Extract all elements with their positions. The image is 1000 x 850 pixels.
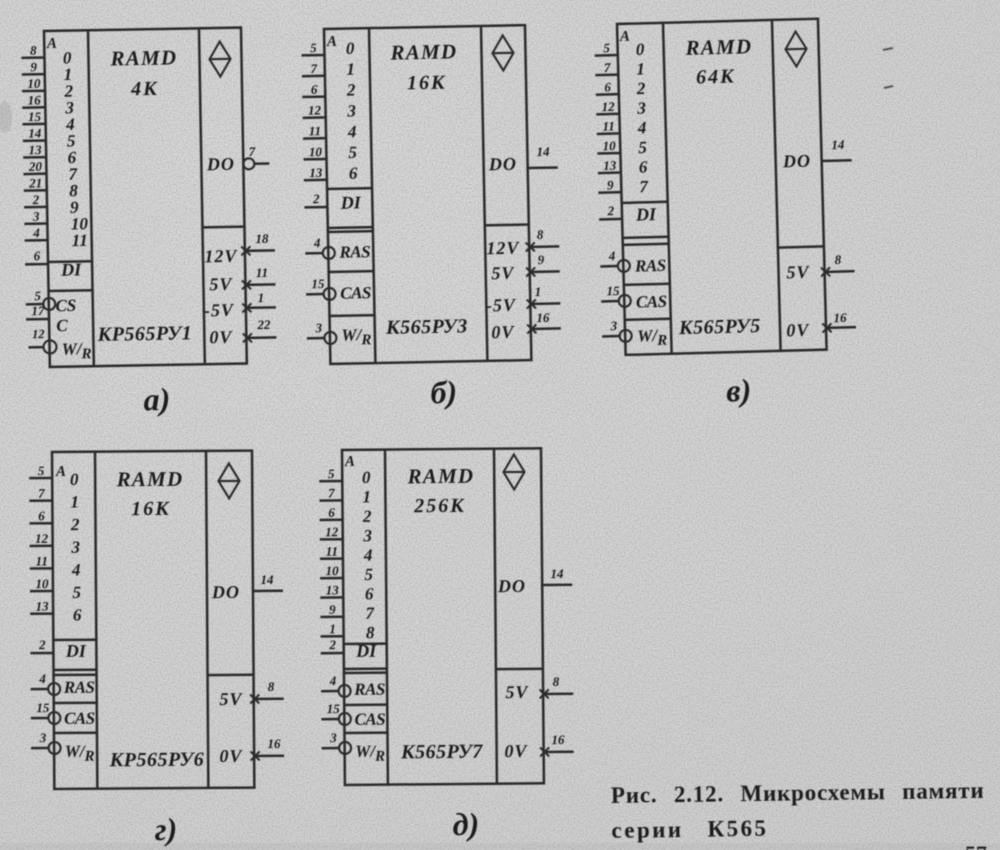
svg-text:7: 7 bbox=[38, 486, 45, 501]
svg-text:8: 8 bbox=[366, 623, 375, 642]
svg-text:2: 2 bbox=[636, 79, 646, 98]
svg-text:0V: 0V bbox=[504, 741, 528, 761]
svg-text:A: A bbox=[619, 29, 630, 45]
svg-text:3: 3 bbox=[329, 730, 337, 745]
svg-text:1: 1 bbox=[636, 59, 645, 78]
svg-text:DO: DO bbox=[488, 154, 517, 175]
svg-text:2: 2 bbox=[362, 507, 372, 526]
svg-text:7: 7 bbox=[310, 61, 317, 76]
svg-text:DO: DO bbox=[206, 154, 235, 175]
svg-text:3: 3 bbox=[314, 320, 322, 335]
svg-text:DO: DO bbox=[497, 576, 526, 596]
svg-text:12V: 12V bbox=[204, 246, 238, 267]
svg-text:13: 13 bbox=[36, 599, 50, 614]
svg-text:а): а) bbox=[143, 381, 170, 417]
svg-text:6: 6 bbox=[34, 248, 41, 263]
svg-text:4: 4 bbox=[329, 673, 337, 688]
svg-text:11: 11 bbox=[309, 123, 322, 138]
svg-text:9: 9 bbox=[538, 252, 545, 267]
svg-text:5: 5 bbox=[348, 143, 357, 162]
svg-text:1: 1 bbox=[535, 284, 542, 299]
svg-text:16: 16 bbox=[267, 736, 281, 751]
svg-text:4: 4 bbox=[313, 235, 321, 250]
svg-text:6: 6 bbox=[311, 82, 318, 97]
svg-text:CAS: CAS bbox=[636, 292, 667, 312]
svg-text:12: 12 bbox=[32, 327, 45, 341]
svg-text:12: 12 bbox=[308, 102, 322, 117]
svg-text:К565РУ7: К565РУ7 bbox=[400, 741, 483, 764]
svg-text:12: 12 bbox=[601, 99, 615, 114]
svg-text:серии К565: серии К565 bbox=[611, 816, 768, 843]
svg-text:К565РУ3: К565РУ3 bbox=[385, 315, 468, 339]
svg-text:0V: 0V bbox=[786, 320, 811, 341]
svg-text:16К: 16К bbox=[407, 72, 447, 95]
svg-text:16: 16 bbox=[536, 310, 550, 325]
svg-text:8: 8 bbox=[553, 674, 560, 689]
svg-text:11: 11 bbox=[326, 544, 338, 559]
svg-text:DI: DI bbox=[340, 192, 362, 212]
svg-text:2: 2 bbox=[328, 637, 336, 652]
svg-text:15: 15 bbox=[28, 109, 42, 124]
svg-text:14: 14 bbox=[831, 137, 845, 152]
svg-text:256К: 256К bbox=[413, 495, 466, 517]
svg-text:в): в) bbox=[726, 372, 752, 409]
svg-text:6: 6 bbox=[365, 584, 374, 603]
svg-text:8: 8 bbox=[834, 252, 841, 267]
svg-text:10: 10 bbox=[27, 76, 41, 91]
svg-text:д): д) bbox=[452, 806, 479, 842]
svg-text:3: 3 bbox=[609, 318, 617, 333]
svg-text:5: 5 bbox=[364, 565, 373, 584]
svg-text:15: 15 bbox=[327, 701, 341, 716]
svg-text:7: 7 bbox=[249, 144, 256, 159]
svg-text:-5V: -5V bbox=[486, 295, 517, 316]
svg-text:13: 13 bbox=[309, 165, 323, 180]
svg-text:3: 3 bbox=[70, 538, 80, 557]
svg-text:11: 11 bbox=[71, 231, 87, 250]
svg-text:К565РУ5: К565РУ5 bbox=[678, 315, 761, 339]
svg-text:6: 6 bbox=[38, 508, 45, 523]
svg-text:4: 4 bbox=[71, 560, 81, 579]
svg-text:RAMD: RAMD bbox=[109, 45, 177, 70]
svg-text:DI: DI bbox=[635, 204, 658, 225]
svg-text:RAMD: RAMD bbox=[406, 464, 474, 489]
svg-text:CAS: CAS bbox=[340, 283, 371, 303]
svg-text:5: 5 bbox=[38, 463, 45, 478]
svg-text:RAS: RAS bbox=[63, 678, 95, 697]
svg-text:10: 10 bbox=[602, 138, 616, 153]
svg-text:16: 16 bbox=[551, 732, 565, 747]
svg-text:15: 15 bbox=[311, 276, 325, 291]
svg-text:13: 13 bbox=[603, 158, 617, 173]
svg-text:3: 3 bbox=[32, 209, 40, 224]
svg-text:6: 6 bbox=[73, 605, 82, 624]
svg-text:A: A bbox=[344, 454, 355, 470]
svg-text:9: 9 bbox=[607, 177, 614, 192]
svg-text:0V: 0V bbox=[491, 322, 515, 342]
svg-text:2: 2 bbox=[70, 515, 80, 534]
svg-text:21: 21 bbox=[28, 175, 42, 190]
svg-text:3: 3 bbox=[39, 730, 47, 745]
svg-text:5V: 5V bbox=[786, 262, 811, 283]
svg-text:A: A bbox=[326, 34, 337, 50]
svg-text:12: 12 bbox=[325, 524, 339, 539]
svg-text:0V: 0V bbox=[219, 746, 243, 766]
svg-text:A: A bbox=[55, 464, 66, 480]
svg-text:4: 4 bbox=[38, 671, 46, 686]
svg-text:CAS: CAS bbox=[354, 710, 385, 729]
svg-text:6: 6 bbox=[328, 505, 335, 520]
svg-text:A: A bbox=[46, 36, 57, 52]
svg-text:1: 1 bbox=[70, 493, 79, 512]
svg-text:5V: 5V bbox=[491, 263, 515, 283]
svg-text:4: 4 bbox=[608, 248, 616, 263]
svg-text:5V: 5V bbox=[505, 682, 529, 702]
svg-text:0: 0 bbox=[362, 468, 371, 487]
svg-text:16: 16 bbox=[28, 92, 42, 107]
svg-text:5: 5 bbox=[603, 40, 610, 55]
svg-text:22: 22 bbox=[256, 317, 271, 332]
svg-text:11: 11 bbox=[256, 265, 269, 280]
svg-text:-5V: -5V bbox=[204, 300, 235, 321]
svg-text:6: 6 bbox=[349, 164, 358, 183]
svg-text:КР565РУ6: КР565РУ6 bbox=[109, 749, 205, 772]
svg-text:5: 5 bbox=[34, 288, 41, 303]
svg-text:8: 8 bbox=[537, 227, 544, 242]
svg-text:1: 1 bbox=[329, 621, 336, 636]
svg-text:4: 4 bbox=[363, 546, 373, 565]
svg-text:5V: 5V bbox=[209, 274, 233, 294]
svg-text:2: 2 bbox=[38, 637, 46, 652]
svg-text:DI: DI bbox=[355, 641, 377, 661]
svg-text:5: 5 bbox=[638, 138, 647, 157]
svg-text:5: 5 bbox=[72, 583, 81, 602]
svg-text:10: 10 bbox=[35, 576, 49, 591]
svg-text:0: 0 bbox=[636, 40, 645, 59]
svg-text:3: 3 bbox=[346, 101, 356, 120]
svg-text:4: 4 bbox=[637, 118, 647, 137]
svg-text:DO: DO bbox=[782, 151, 812, 172]
svg-text:17: 17 bbox=[31, 303, 45, 318]
svg-text:1: 1 bbox=[346, 60, 355, 79]
svg-text:2: 2 bbox=[32, 192, 40, 207]
svg-text:DI: DI bbox=[60, 259, 82, 279]
svg-text:DI: DI bbox=[65, 641, 87, 661]
svg-text:RAMD: RAMD bbox=[684, 34, 752, 60]
svg-text:б): б) bbox=[430, 374, 457, 411]
svg-text:5V: 5V bbox=[219, 689, 243, 709]
svg-text:14: 14 bbox=[536, 144, 550, 159]
svg-text:г): г) bbox=[155, 811, 178, 847]
svg-text:RAS: RAS bbox=[634, 256, 666, 276]
svg-text:16К: 16К bbox=[131, 498, 171, 520]
svg-text:Рис. 2.12. Микросхемы памяти: Рис. 2.12. Микросхемы памяти bbox=[611, 778, 985, 808]
svg-text:14: 14 bbox=[260, 572, 274, 587]
svg-text:20: 20 bbox=[28, 159, 43, 174]
svg-text:4: 4 bbox=[32, 225, 40, 240]
svg-text:1: 1 bbox=[258, 290, 265, 305]
svg-text:2: 2 bbox=[312, 191, 320, 206]
svg-text:9: 9 bbox=[329, 602, 336, 617]
svg-text:12V: 12V bbox=[486, 238, 520, 259]
svg-text:4К: 4К bbox=[130, 78, 159, 100]
svg-text:15: 15 bbox=[36, 700, 50, 715]
svg-text:8: 8 bbox=[268, 679, 275, 694]
svg-text:15: 15 bbox=[606, 283, 620, 298]
svg-text:6: 6 bbox=[604, 79, 611, 94]
svg-text:8: 8 bbox=[30, 43, 37, 58]
svg-text:CAS: CAS bbox=[64, 709, 95, 728]
svg-text:CS: CS bbox=[55, 296, 76, 315]
svg-text:5: 5 bbox=[310, 40, 317, 55]
svg-text:0V: 0V bbox=[209, 327, 233, 347]
svg-text:6: 6 bbox=[639, 157, 648, 176]
svg-text:1: 1 bbox=[362, 487, 371, 506]
svg-text:КР565РУ1: КР565РУ1 bbox=[96, 322, 192, 346]
svg-text:7: 7 bbox=[604, 60, 611, 75]
svg-text:0: 0 bbox=[70, 470, 79, 489]
svg-text:RAMD: RAMD bbox=[389, 39, 457, 64]
svg-text:3: 3 bbox=[636, 99, 646, 118]
svg-text:2: 2 bbox=[606, 203, 614, 218]
svg-text:14: 14 bbox=[550, 566, 564, 581]
svg-text:11: 11 bbox=[36, 553, 48, 568]
svg-text:14: 14 bbox=[28, 126, 42, 141]
svg-text:0: 0 bbox=[346, 39, 355, 58]
svg-text:RAS: RAS bbox=[338, 242, 370, 262]
svg-text:10: 10 bbox=[309, 144, 323, 159]
svg-text:13: 13 bbox=[326, 582, 340, 597]
svg-text:11: 11 bbox=[602, 118, 615, 133]
svg-text:10: 10 bbox=[325, 563, 339, 578]
svg-text:C: C bbox=[56, 316, 68, 335]
svg-text:5: 5 bbox=[328, 466, 335, 481]
svg-text:4: 4 bbox=[347, 122, 357, 141]
svg-text:13: 13 bbox=[28, 142, 42, 157]
svg-text:DO: DO bbox=[211, 582, 240, 602]
svg-text:18: 18 bbox=[255, 231, 269, 246]
svg-text:12: 12 bbox=[35, 531, 49, 546]
svg-text:16: 16 bbox=[833, 310, 847, 325]
svg-text:64К: 64К bbox=[696, 66, 736, 89]
svg-text:RAS: RAS bbox=[353, 680, 385, 699]
svg-text:3: 3 bbox=[362, 526, 372, 545]
svg-text:2: 2 bbox=[346, 80, 356, 99]
svg-text:7: 7 bbox=[328, 485, 335, 500]
svg-text:RAMD: RAMD bbox=[116, 467, 184, 491]
svg-text:9: 9 bbox=[30, 59, 37, 74]
